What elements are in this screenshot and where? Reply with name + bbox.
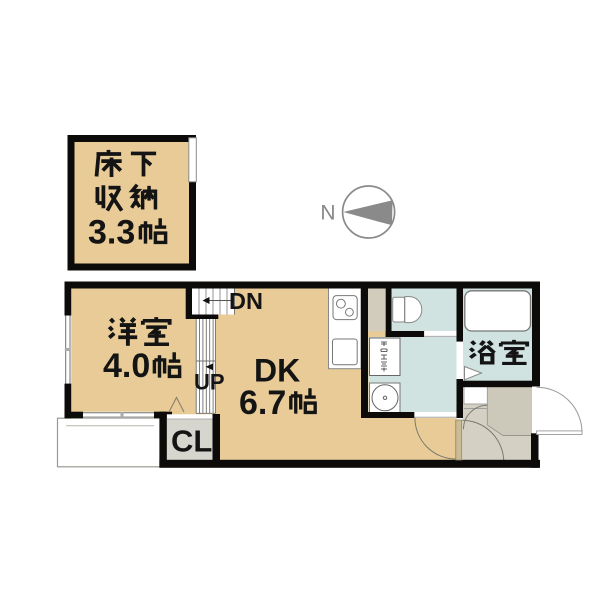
svg-text:CL: CL	[171, 424, 212, 459]
svg-text:4.0: 4.0	[103, 347, 150, 385]
svg-text:N: N	[320, 202, 335, 225]
svg-text:DN: DN	[229, 288, 263, 314]
svg-text:UP: UP	[194, 370, 225, 395]
svg-text:3.3: 3.3	[88, 214, 135, 252]
svg-text:6.7: 6.7	[239, 384, 286, 422]
